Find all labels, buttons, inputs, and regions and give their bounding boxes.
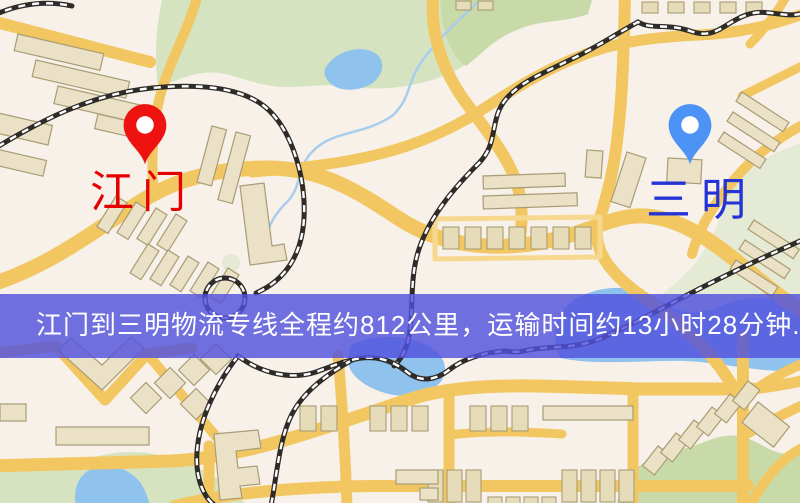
destination-pin [667,103,713,166]
destination-label: 三明 [646,177,756,222]
route-info-text: 江门到三明物流专线全程约812公里，运输时间约13小时28分钟. [0,310,800,341]
logistics-route-map: 江门到三明物流专线全程约812公里，运输时间约13小时28分钟. 江门 三明 [0,0,800,503]
location-pin-icon [667,103,713,166]
map-background [0,0,800,503]
origin-pin [122,103,168,166]
route-info-banner: 江门到三明物流专线全程约812公里，运输时间约13小时28分钟. [0,294,800,358]
location-pin-icon [122,103,168,166]
origin-label: 江门 [90,171,194,215]
